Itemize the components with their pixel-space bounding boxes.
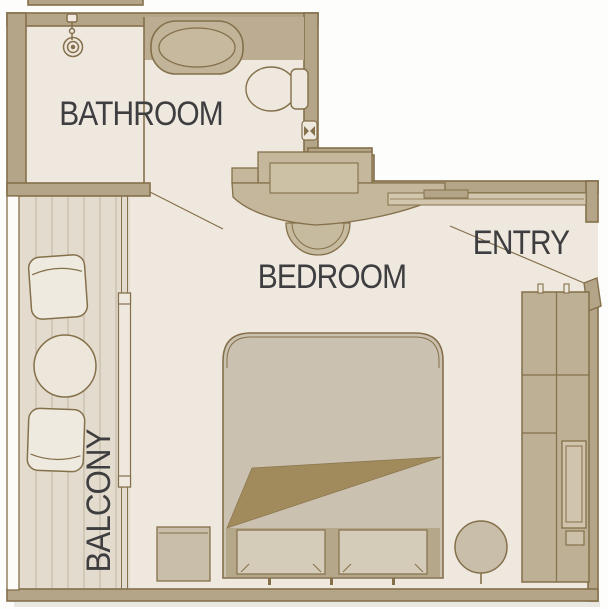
nightstand: [157, 527, 210, 581]
entry-label: ENTRY: [442, 226, 600, 260]
bathroom-left-wall: [7, 13, 26, 194]
bed: [223, 333, 443, 585]
balcony-chair: [28, 254, 88, 320]
hanger-peg: [564, 284, 569, 293]
toilet-icon: [246, 67, 308, 111]
pillow: [237, 530, 325, 574]
floor-shadow: [14, 601, 600, 607]
bathroom-label: BATHROOM: [53, 97, 229, 131]
neighbor-wall-stub: [28, 0, 143, 5]
balcony-chair: [27, 408, 85, 472]
vanity-mirror: [270, 163, 358, 193]
balcony-table: [34, 335, 96, 397]
bathroom-bottom-wall: [7, 183, 150, 196]
hanger-peg: [538, 284, 543, 293]
balcony-railing: [7, 196, 19, 590]
entry-door-jamb-wall: [586, 181, 598, 222]
bedroom-label: BEDROOM: [244, 260, 420, 294]
cabin-floor-plan: BATHROOM BEDROOM ENTRY BALCONY: [0, 0, 608, 610]
pillow: [339, 530, 427, 574]
tissue-holder-icon: [302, 121, 317, 140]
balcony-label: BALCONY: [82, 409, 116, 593]
bathtub-icon: [151, 21, 243, 74]
